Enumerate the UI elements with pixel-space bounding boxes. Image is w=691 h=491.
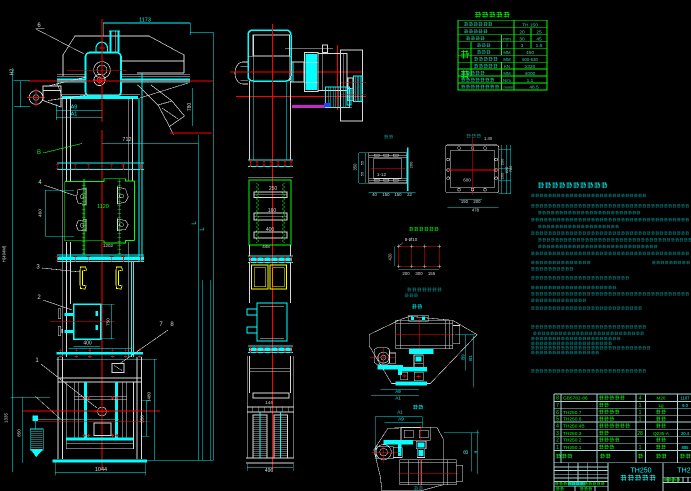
- svg-text:MM: MM: [503, 50, 511, 55]
- svg-text:M20: M20: [657, 396, 666, 401]
- svg-text:1202: 1202: [103, 243, 114, 248]
- svg-text:A1: A1: [395, 395, 401, 400]
- svg-text:22: 22: [407, 192, 412, 197]
- svg-text:A9: A9: [71, 105, 78, 111]
- svg-text:712: 712: [122, 137, 131, 143]
- svg-text:B: B: [464, 450, 470, 454]
- svg-text:B1: B1: [468, 355, 473, 361]
- svg-text:≥320: ≥320: [525, 64, 536, 70]
- svg-text:350: 350: [140, 415, 145, 423]
- svg-text:40: 40: [372, 192, 377, 197]
- svg-text:1.8: 1.8: [536, 43, 543, 49]
- svg-text:2: 2: [556, 438, 559, 444]
- svg-text:400: 400: [266, 227, 275, 233]
- svg-text:II: II: [61, 329, 64, 335]
- svg-text:1: 1: [639, 445, 642, 451]
- svg-text:500-630: 500-630: [522, 57, 538, 62]
- svg-text:200: 200: [499, 158, 504, 165]
- svg-text:55: 55: [360, 160, 365, 165]
- svg-text:1-12: 1-12: [377, 172, 387, 177]
- svg-text:780: 780: [508, 165, 513, 172]
- svg-text:3: 3: [521, 43, 524, 49]
- svg-text:448: 448: [262, 244, 270, 249]
- svg-text:TH250.1: TH250.1: [563, 445, 582, 451]
- svg-text:150: 150: [382, 192, 390, 197]
- svg-text:4000: 4000: [525, 71, 536, 77]
- svg-text:N/m: N/m: [503, 78, 511, 83]
- svg-text:750: 750: [106, 318, 111, 326]
- svg-text:l: l: [506, 43, 507, 49]
- svg-text:400: 400: [83, 340, 92, 346]
- svg-text:A1: A1: [71, 112, 78, 118]
- svg-text:TH250.3: TH250.3: [563, 431, 582, 437]
- svg-text:20.4: 20.4: [681, 431, 690, 436]
- svg-text:5: 5: [556, 417, 559, 423]
- svg-text:200: 200: [473, 199, 481, 204]
- svg-text:155: 155: [428, 271, 436, 276]
- svg-text:25: 25: [536, 29, 542, 35]
- svg-text:1120: 1120: [97, 204, 109, 210]
- svg-text:1107: 1107: [680, 396, 690, 401]
- svg-text:780: 780: [187, 103, 193, 112]
- svg-text:1335: 1335: [4, 412, 9, 423]
- svg-text:4: 4: [639, 396, 642, 402]
- svg-text:160: 160: [268, 208, 277, 214]
- svg-text:A1: A1: [397, 410, 403, 415]
- svg-text:7: 7: [556, 403, 559, 409]
- svg-text:a: a: [474, 450, 480, 453]
- svg-text:150: 150: [394, 192, 402, 197]
- svg-text:1: 1: [639, 417, 642, 423]
- svg-text:200: 200: [402, 271, 410, 276]
- svg-text:496: 496: [265, 468, 274, 474]
- svg-text:m/min: m/min: [504, 85, 515, 90]
- svg-text:H(494M): H(494M): [2, 245, 7, 262]
- svg-text:KN: KN: [504, 64, 510, 69]
- svg-text:TH 150: TH 150: [522, 22, 538, 28]
- svg-text:450: 450: [526, 50, 534, 56]
- svg-text:TH250: TH250: [630, 468, 651, 475]
- svg-text:TH2: TH2: [677, 468, 690, 475]
- svg-text:250: 250: [269, 186, 278, 192]
- svg-text:A9: A9: [395, 389, 401, 394]
- svg-text:850: 850: [17, 429, 22, 437]
- svg-text:GB5782-86: GB5782-86: [563, 396, 588, 402]
- svg-text:B9: B9: [461, 354, 466, 360]
- svg-text:1:40: 1:40: [484, 136, 493, 141]
- svg-text:300: 300: [415, 271, 423, 276]
- svg-text:1: 1: [639, 403, 642, 409]
- svg-text:TH250.2: TH250.2: [563, 438, 582, 444]
- svg-text:20: 20: [519, 29, 525, 35]
- svg-text:6: 6: [556, 410, 559, 416]
- svg-text:8: 8: [556, 396, 559, 402]
- svg-text:600: 600: [463, 178, 471, 183]
- svg-text:1: 1: [556, 445, 559, 451]
- svg-text:Q235-A: Q235-A: [653, 431, 670, 436]
- svg-text:260: 260: [409, 161, 414, 168]
- svg-text:TH250.4B: TH250.4B: [563, 424, 585, 430]
- svg-text:3: 3: [556, 431, 559, 437]
- svg-text:mm: mm: [503, 36, 511, 41]
- svg-text:8-Ø10: 8-Ø10: [405, 237, 418, 242]
- svg-text:Lg: Lg: [658, 403, 664, 408]
- svg-text:1044: 1044: [95, 467, 107, 473]
- svg-text:350: 350: [353, 163, 358, 171]
- svg-text:TH250.6: TH250.6: [563, 417, 582, 423]
- svg-text:144: 144: [265, 400, 273, 405]
- svg-text:55: 55: [360, 171, 365, 176]
- svg-text:MM: MM: [503, 71, 511, 76]
- svg-text:150: 150: [461, 199, 469, 204]
- svg-text:45: 45: [536, 36, 542, 42]
- svg-text:4: 4: [556, 424, 559, 430]
- svg-text:9.0: 9.0: [682, 403, 688, 408]
- svg-text:28: 28: [637, 431, 643, 437]
- svg-text:H2: H2: [10, 69, 16, 76]
- svg-text:420: 420: [388, 253, 393, 261]
- svg-text:TH250.7: TH250.7: [563, 410, 582, 416]
- svg-text:MM: MM: [503, 57, 511, 62]
- svg-text:1480: 1480: [147, 391, 152, 402]
- svg-text:1173: 1173: [139, 18, 151, 24]
- svg-text:30: 30: [519, 36, 525, 42]
- svg-text:460: 460: [38, 209, 44, 217]
- svg-text:1: 1: [639, 410, 642, 416]
- svg-text:885: 885: [682, 445, 690, 450]
- svg-text:B: B: [37, 150, 41, 156]
- svg-text:48.5: 48.5: [529, 85, 539, 91]
- svg-text:478: 478: [472, 208, 480, 213]
- svg-text:1.1: 1.1: [527, 78, 534, 84]
- svg-text:A9: A9: [398, 417, 404, 422]
